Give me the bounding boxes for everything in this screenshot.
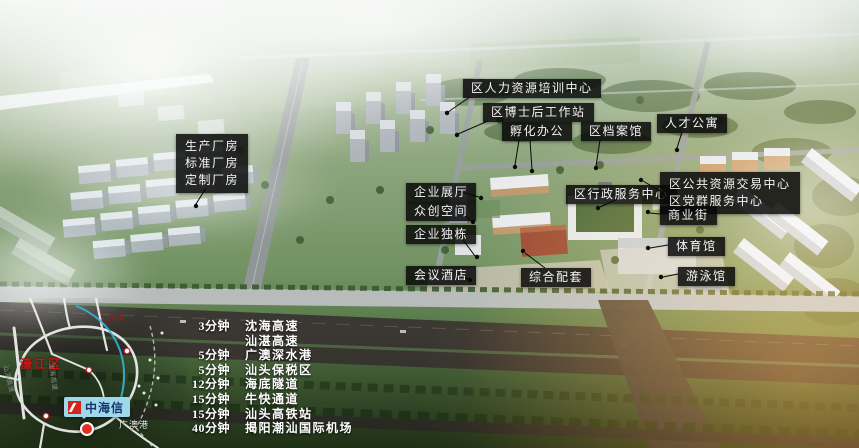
travel-time: 40分钟 (182, 421, 230, 436)
travel-destination: 牛快通道 (245, 392, 299, 407)
brand-bubble: 中海信 (64, 397, 130, 417)
port-label: 广澳港 (119, 418, 149, 431)
travel-destination: 汕头高铁站 (245, 407, 313, 422)
label-mixed-support: 综合配套 (521, 268, 591, 287)
travel-time (182, 334, 230, 349)
travel-destination: 沈海高速 (245, 319, 299, 334)
travel-destination: 汕头保税区 (245, 363, 313, 378)
travel-time: 15分钟 (182, 407, 230, 422)
travel-time: 5分钟 (182, 363, 230, 378)
minimap-roads (0, 298, 188, 448)
travel-row: 12分钟海底隧道 (182, 377, 353, 392)
location-minimap: 濠江区 汕头湾 广澳港 汕湛高速 沈海高速 中海信 (0, 298, 188, 448)
travel-row: 40分钟揭阳潮汕国际机场 (182, 421, 353, 436)
travel-row: 5分钟汕头保税区 (182, 363, 353, 378)
travel-row: 汕湛高速 (182, 334, 353, 349)
label-maker-space: 众创空间 (406, 202, 476, 221)
label-conference-hotel: 会议酒店 (406, 266, 476, 285)
travel-row: 15分钟牛快通道 (182, 392, 353, 407)
brand-name: 中海信 (85, 399, 124, 416)
label-hr-training-center: 区人力资源培训中心 (463, 79, 601, 98)
label-postdoc-station: 区博士后工作站 (483, 103, 594, 122)
travel-destination: 海底隧道 (245, 377, 299, 392)
location-pin-icon (80, 422, 94, 436)
label-factory-line: 标准厂房 (185, 155, 239, 172)
zhonghaixin-logo-icon (68, 401, 81, 414)
travel-row: 5分钟广澳深水港 (182, 348, 353, 363)
travel-destination: 广澳深水港 (245, 348, 313, 363)
label-natatorium: 游泳馆 (678, 267, 735, 286)
label-incubator-office: 孵化办公 (502, 122, 572, 141)
travel-row: 3分钟沈海高速 (182, 319, 353, 334)
label-enterprise-building: 企业独栋 (406, 225, 476, 244)
label-commercial-street: 商业街 (660, 206, 717, 225)
label-public-resource-line: 区公共资源交易中心 (669, 176, 791, 193)
travel-time-list: 3分钟沈海高速 汕湛高速 5分钟广澳深水港 5分钟汕头保税区 12分钟海底隧道 … (182, 319, 353, 436)
travel-destination: 揭阳潮汕国际机场 (245, 421, 353, 436)
travel-time: 3分钟 (182, 319, 230, 334)
label-factory-line: 生产厂房 (185, 138, 239, 155)
label-gymnasium: 体育馆 (668, 237, 725, 256)
travel-time: 5分钟 (182, 348, 230, 363)
travel-time: 12分钟 (182, 377, 230, 392)
label-archives: 区档案馆 (581, 122, 651, 141)
bay-label: 汕头湾 (101, 313, 125, 323)
travel-time: 15分钟 (182, 392, 230, 407)
label-talent-apartment: 人才公寓 (657, 114, 727, 133)
masterplan-aerial-view: 生产厂房 标准厂房 定制厂房 区人力资源培训中心 区博士后工作站 孵化办公 区档… (0, 0, 859, 448)
travel-row: 15分钟汕头高铁站 (182, 407, 353, 422)
travel-destination: 汕湛高速 (245, 334, 299, 349)
label-enterprise-hall: 企业展厅 (406, 183, 476, 202)
label-factory-types: 生产厂房 标准厂房 定制厂房 (176, 134, 248, 193)
landmark-dots (126, 332, 164, 412)
label-factory-line: 定制厂房 (185, 172, 239, 189)
